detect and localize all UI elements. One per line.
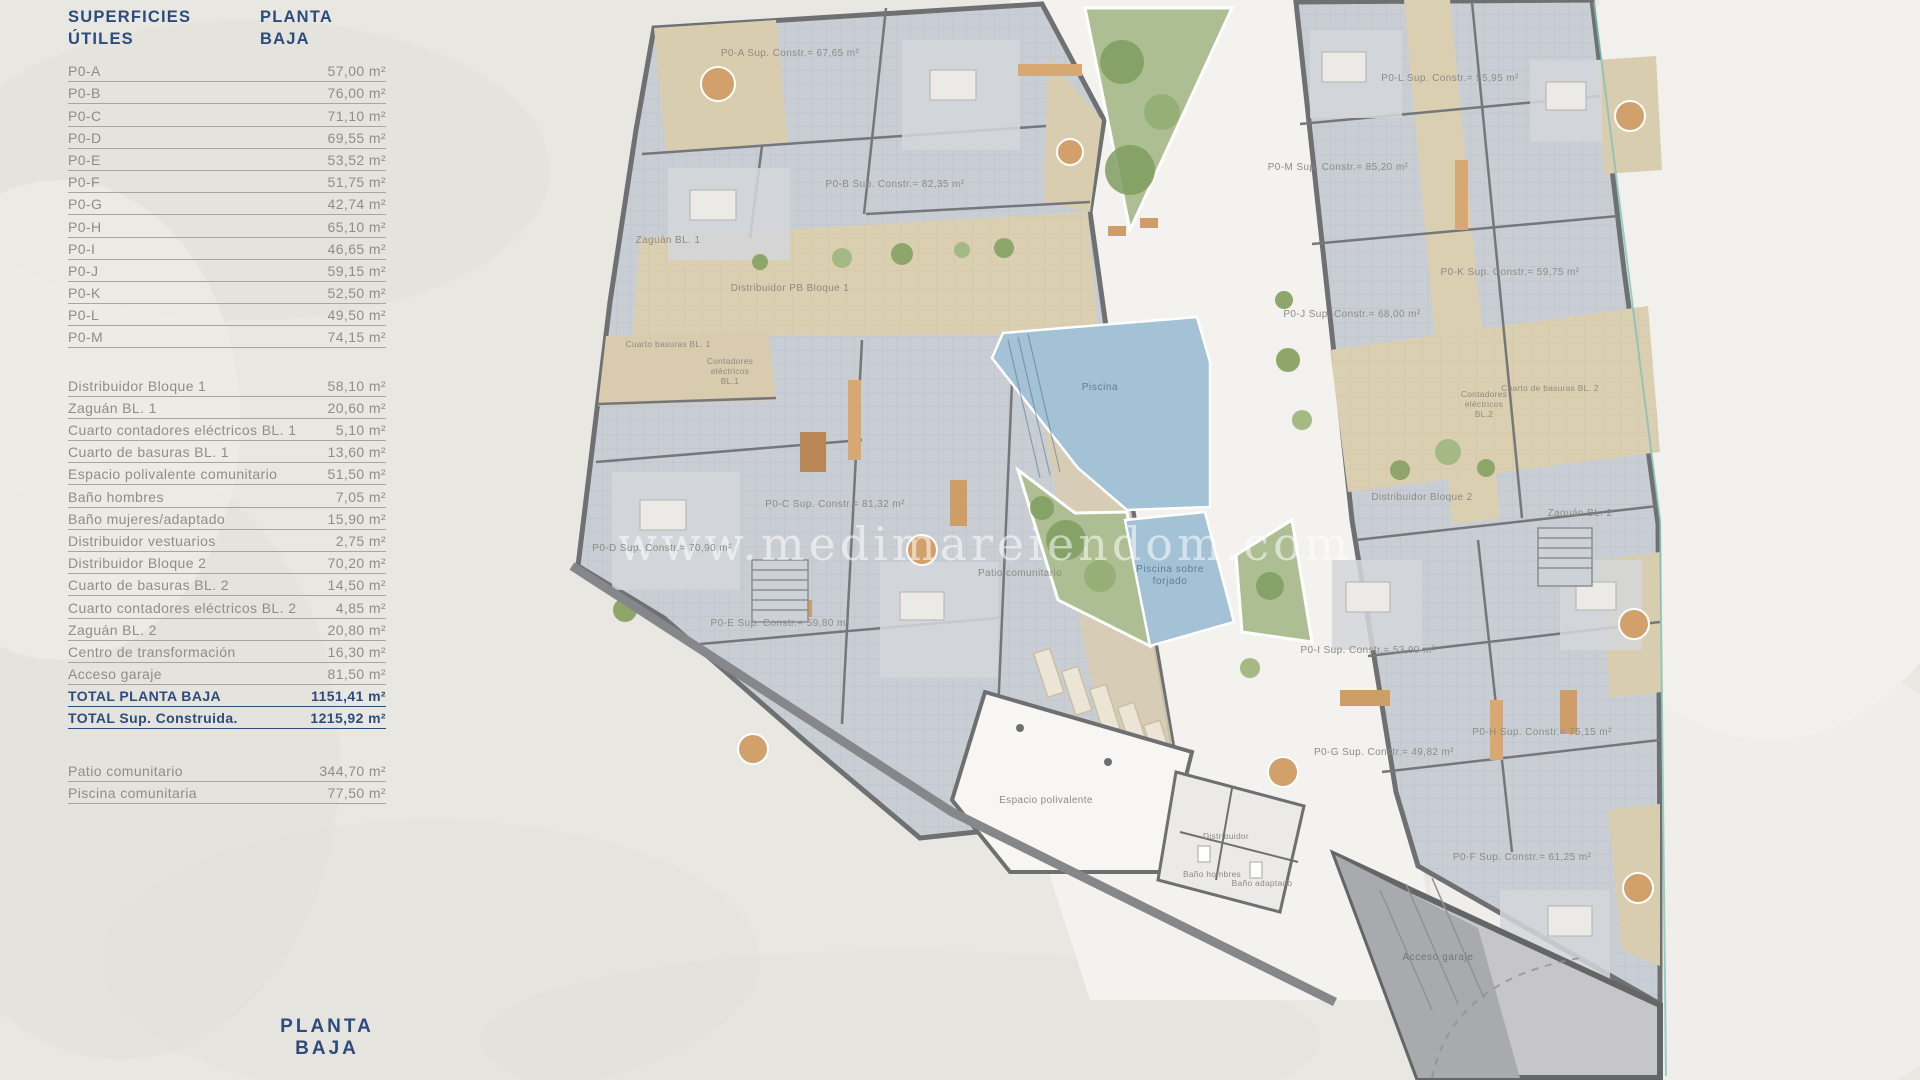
plan-label-p0f: P0-F Sup. Constr.= 61,25 m²	[1453, 852, 1592, 863]
table-row: Distribuidor vestuarios2,75 m²	[68, 530, 386, 552]
stairs-icon	[1538, 528, 1592, 586]
table-row: Acceso garaje81,50 m²	[68, 663, 386, 685]
table-row: Cuarto de basuras BL. 214,50 m²	[68, 574, 386, 596]
table-row: P0-E53,52 m²	[68, 149, 386, 171]
table-row: Distribuidor Bloque 158,10 m²	[68, 374, 386, 396]
table-row: Piscina comunitaria77,50 m²	[68, 782, 386, 804]
common-areas-section: Distribuidor Bloque 158,10 m² Zaguán BL.…	[68, 374, 386, 729]
table-row: P0-A57,00 m²	[68, 60, 386, 82]
plan-label-p0l: P0-L Sup. Constr.= 55,95 m²	[1381, 73, 1519, 84]
terrace-table-icon	[701, 67, 735, 101]
table-title: SUPERFICIES ÚTILES	[68, 6, 260, 50]
floor-plan-page: www.medimareiendom.com P0-A Sup. Constr.…	[0, 0, 1920, 1080]
plan-label-distribuidor2: Distribuidor Bloque 2	[1371, 492, 1472, 503]
table-row: Centro de transformación16,30 m²	[68, 641, 386, 663]
table-row: P0-I46,65 m²	[68, 238, 386, 260]
table-header: SUPERFICIES ÚTILES PLANTA BAJA	[68, 6, 386, 50]
plan-label-forjado-2: forjado	[1153, 576, 1188, 587]
plan-label-cont1-l3: BL.1	[721, 376, 739, 386]
terrace-table-icon	[1619, 609, 1649, 639]
plan-label-basuras2: Cuarto de basuras BL. 2	[1501, 383, 1599, 393]
plan-label-p0c: P0-C Sup. Constr.= 81,32 m²	[765, 499, 905, 510]
plan-label-p0h: P0-H Sup. Constr.= 75,15 m²	[1472, 727, 1612, 738]
plan-label-cont2-l3: BL.2	[1475, 409, 1493, 419]
table-row: Espacio polivalente comunitario51,50 m²	[68, 463, 386, 485]
plan-label-cont1-l2: eléctricos	[711, 366, 749, 376]
plan-label-p0a: P0-A Sup. Constr.= 67,65 m²	[721, 48, 860, 59]
page-title: PLANTA BAJA	[262, 1016, 392, 1060]
plan-label-piscina: Piscina	[1082, 382, 1118, 393]
table-row: Zaguán BL. 220,80 m²	[68, 619, 386, 641]
plan-label-basuras1: Cuarto basuras BL. 1	[625, 339, 710, 349]
table-row: Cuarto contadores eléctricos BL. 24,85 m…	[68, 596, 386, 618]
table-row: P0-K52,50 m²	[68, 282, 386, 304]
apartments-section: P0-A57,00 m² P0-B76,00 m² P0-C71,10 m² P…	[68, 60, 386, 348]
table-row: Distribuidor Bloque 270,20 m²	[68, 552, 386, 574]
table-row: P0-L49,50 m²	[68, 304, 386, 326]
plan-label-p0b: P0-B Sup. Constr.= 82,35 m²	[826, 179, 965, 190]
plan-label-p0g: P0-G Sup. Constr.= 49,82 m²	[1314, 747, 1454, 758]
plan-label-distribuidor1: Distribuidor PB Bloque 1	[731, 283, 850, 294]
plan-label-cont2-l1: Contadores	[1461, 389, 1507, 399]
plan-label-espacio: Espacio polivalente	[999, 795, 1093, 806]
table-row: P0-G42,74 m²	[68, 193, 386, 215]
plan-label-zaguan2: Zaguán BL. 2	[1548, 508, 1613, 519]
areas-table: SUPERFICIES ÚTILES PLANTA BAJA P0-A57,00…	[68, 6, 386, 804]
table-row: P0-J59,15 m²	[68, 260, 386, 282]
table-row: Cuarto de basuras BL. 113,60 m²	[68, 441, 386, 463]
plan-label-cont1-l1: Contadores	[707, 356, 753, 366]
plan-label-p0k: P0-K Sup. Constr.= 59,75 m²	[1441, 267, 1580, 278]
outdoor-section: Patio comunitario344,70 m² Piscina comun…	[68, 759, 386, 803]
terrace-table-icon	[1623, 873, 1653, 903]
terrace-table-icon	[1615, 101, 1645, 131]
table-title-right: PLANTA BAJA	[260, 6, 386, 50]
parasol-table-icon	[1268, 757, 1298, 787]
table-row: Cuarto contadores eléctricos BL. 15,10 m…	[68, 419, 386, 441]
plan-label-acceso-garaje: Acceso garaje	[1402, 952, 1473, 963]
plan-label-p0d: P0-D Sup. Constr.= 70,90 m²	[592, 543, 732, 554]
parasol-table-icon	[738, 734, 768, 764]
plan-label-p0j: P0-J Sup. Constr.= 68,00 m²	[1283, 309, 1421, 320]
plan-label-patio: Patio comunitario	[978, 568, 1062, 579]
table-row: P0-D69,55 m²	[68, 127, 386, 149]
plan-label-forjado-1: Piscina sobre	[1136, 564, 1204, 575]
plan-label-distribuidor: Distribuidor	[1203, 831, 1249, 841]
table-row: P0-B76,00 m²	[68, 82, 386, 104]
plan-label-zaguan1: Zaguán BL. 1	[636, 235, 701, 246]
table-row: Patio comunitario344,70 m²	[68, 759, 386, 781]
plan-label-p0i: P0-I Sup. Constr.= 53,90 m²	[1300, 645, 1435, 656]
total-row-planta-baja: TOTAL PLANTA BAJA1151,41 m²	[68, 685, 386, 707]
plan-label-p0e: P0-E Sup. Constr.= 59,80 m²	[711, 618, 850, 629]
terrace-table-icon	[1057, 139, 1083, 165]
total-row-construida: TOTAL Sup. Construida.1215,92 m²	[68, 707, 386, 729]
table-row: Zaguán BL. 120,60 m²	[68, 397, 386, 419]
plan-label-cont2-l2: eléctricos	[1465, 399, 1503, 409]
table-row: P0-F51,75 m²	[68, 171, 386, 193]
plan-label-bano-adaptado: Baño adaptado	[1232, 878, 1293, 888]
table-row: Baño mujeres/adaptado15,90 m²	[68, 508, 386, 530]
table-row: P0-C71,10 m²	[68, 104, 386, 126]
table-row: P0-H65,10 m²	[68, 215, 386, 237]
plan-label-p0m: P0-M Sup. Constr.= 85,20 m²	[1268, 162, 1409, 173]
table-row: P0-M74,15 m²	[68, 326, 386, 348]
table-row: Baño hombres7,05 m²	[68, 485, 386, 507]
